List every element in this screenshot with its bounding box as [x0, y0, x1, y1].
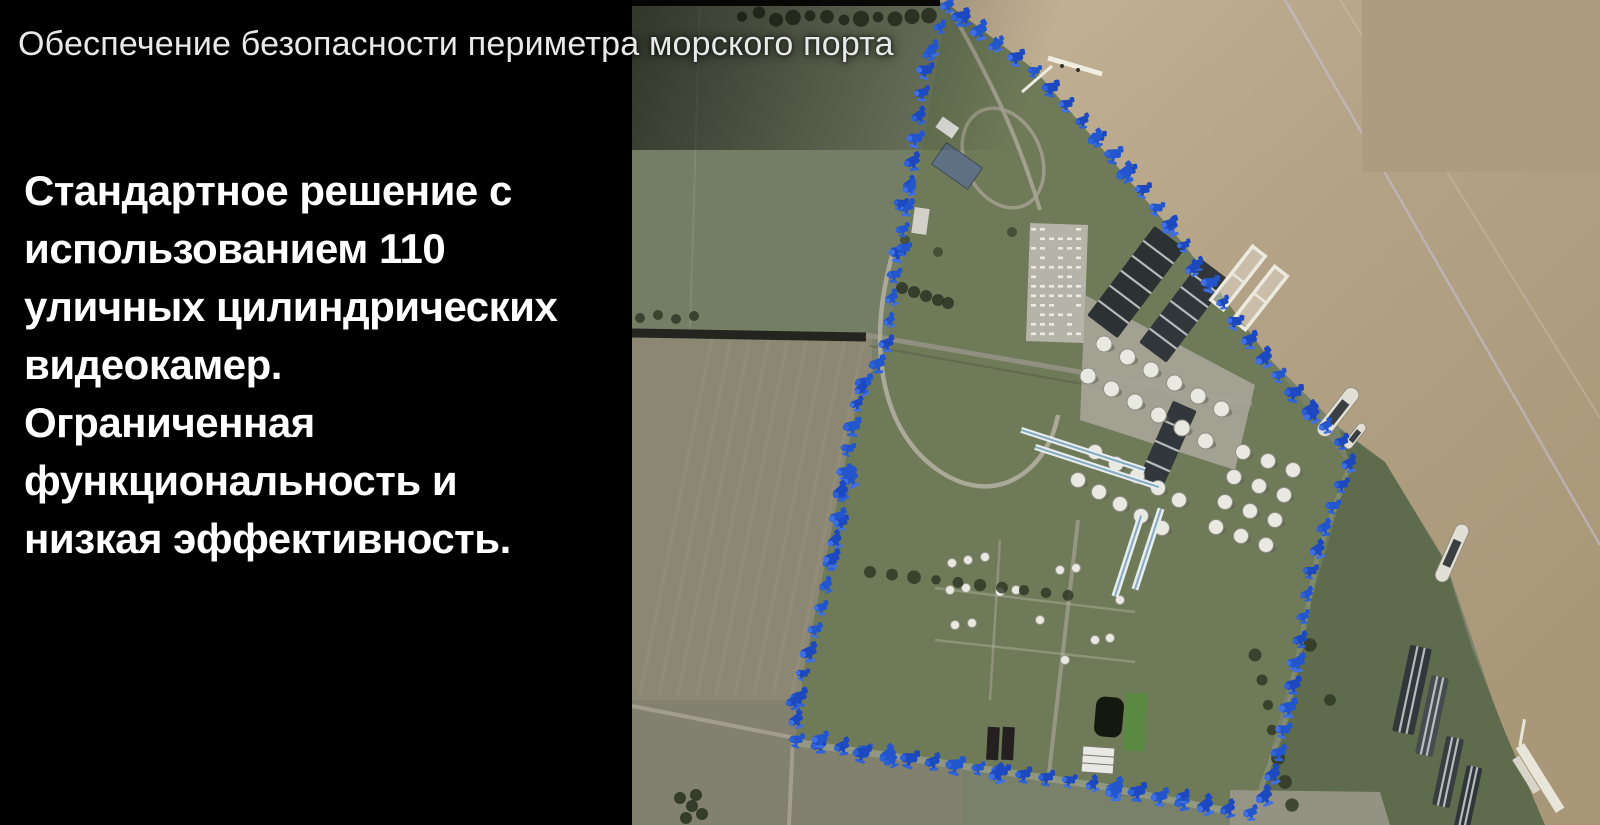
slide-body-text: Стандартное решение с использованием 110… [24, 162, 624, 568]
overlay-patch [1362, 0, 1600, 172]
slide-title: Обеспечение безопасности периметра морск… [18, 24, 938, 64]
presentation-slide: Обеспечение безопасности периметра морск… [0, 0, 1600, 825]
